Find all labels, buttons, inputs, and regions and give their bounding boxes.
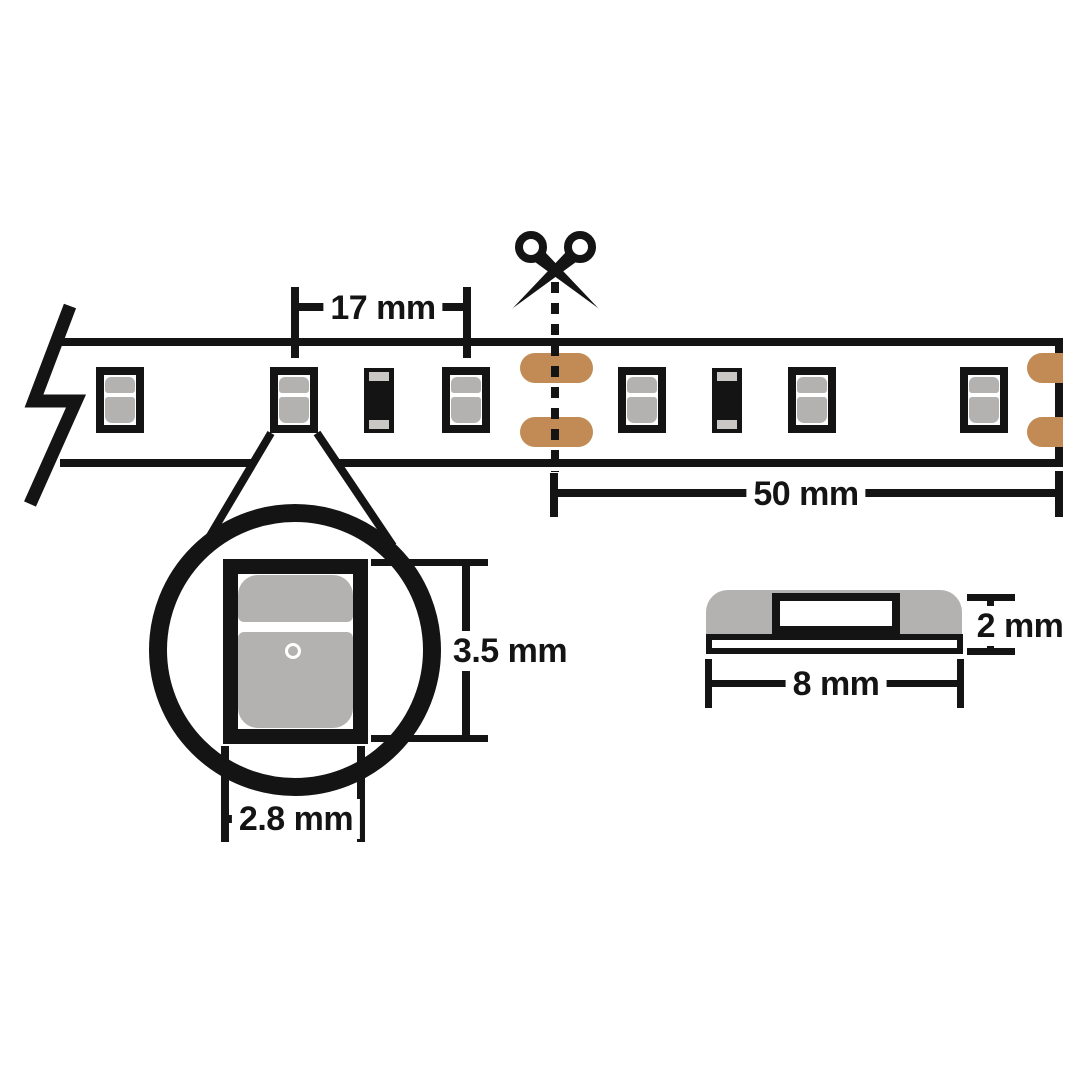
chip-height-label: 3.5 mm [446, 631, 574, 671]
led-inner-bottom [627, 397, 657, 423]
scissors-blade [535, 252, 600, 310]
dimension-tick [371, 559, 488, 566]
profile-height-label: 2 mm [970, 606, 1071, 646]
led-inner-bottom [105, 397, 135, 423]
led-component [618, 367, 666, 433]
led-inner-top [451, 377, 481, 393]
cut-segment-label: 50 mm [746, 474, 865, 514]
led-component-magnified-source [270, 367, 318, 433]
cut-line [551, 282, 559, 472]
profile-width-label: 8 mm [786, 664, 887, 704]
led-inner-top [969, 377, 999, 393]
led-inner-top [627, 377, 657, 393]
led-inner-top [797, 377, 827, 393]
led-chip-zoomed [223, 559, 368, 744]
resistor-cap [369, 372, 389, 381]
led-inner-bottom [969, 397, 999, 423]
led-component [442, 367, 490, 433]
led-pitch-label: 17 mm [323, 288, 442, 328]
led-component [960, 367, 1008, 433]
chip-width-label: 2.8 mm [232, 799, 360, 839]
led-inner-bottom [797, 397, 827, 423]
dimension-tick [221, 746, 229, 842]
led-component [788, 367, 836, 433]
dimension-tick [463, 287, 471, 358]
led-component [96, 367, 144, 433]
scissors-handle [568, 235, 592, 259]
dimension-tick [371, 735, 488, 742]
scissors-blade [511, 252, 576, 310]
resistor-cap [717, 372, 737, 381]
scissors-handle [519, 235, 543, 259]
led-chip-die-dot [285, 643, 301, 659]
solder-pad-end [1027, 417, 1063, 447]
dimension-tick [1055, 471, 1063, 517]
resistor-component [364, 368, 394, 433]
dimension-tick [291, 287, 299, 358]
strip-side-view-led [772, 593, 900, 634]
solder-pad-end [1027, 353, 1063, 383]
led-inner-top [279, 377, 309, 393]
led-inner-bottom [451, 397, 481, 423]
strip-side-view-pcb [706, 634, 963, 654]
resistor-cap [717, 420, 737, 429]
diagram-line-art [0, 0, 1080, 1080]
led-inner-top [105, 377, 135, 393]
led-chip-top-contact [238, 575, 353, 622]
led-inner-bottom [279, 397, 309, 423]
led-strip-dimension-diagram: 17 mm 50 mm 3.5 mm [0, 0, 1080, 1080]
resistor-component [712, 368, 742, 433]
resistor-cap [369, 420, 389, 429]
